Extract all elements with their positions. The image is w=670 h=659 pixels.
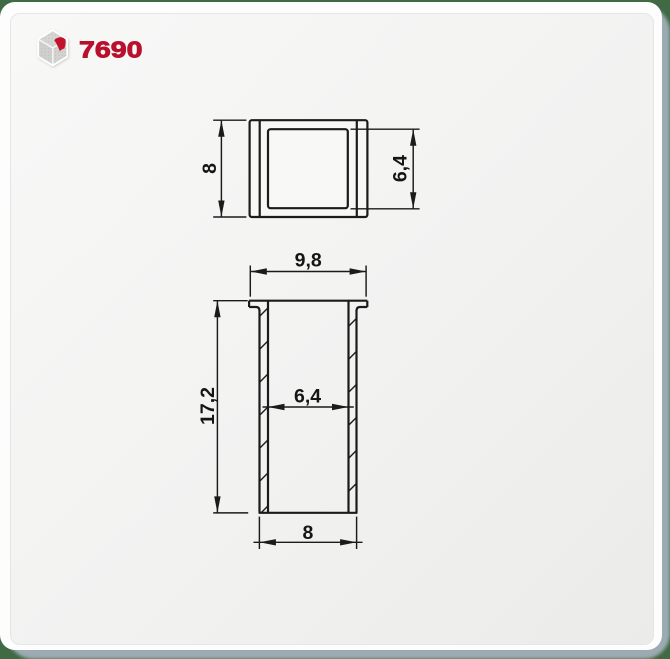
svg-text:7690: 7690 <box>79 36 143 62</box>
svg-text:9,8: 9,8 <box>295 249 322 271</box>
svg-text:6,4: 6,4 <box>294 385 321 407</box>
svg-text:17,2: 17,2 <box>197 387 219 425</box>
svg-text:8: 8 <box>199 163 221 174</box>
svg-text:6,4: 6,4 <box>390 155 412 182</box>
svg-text:8: 8 <box>302 522 313 544</box>
